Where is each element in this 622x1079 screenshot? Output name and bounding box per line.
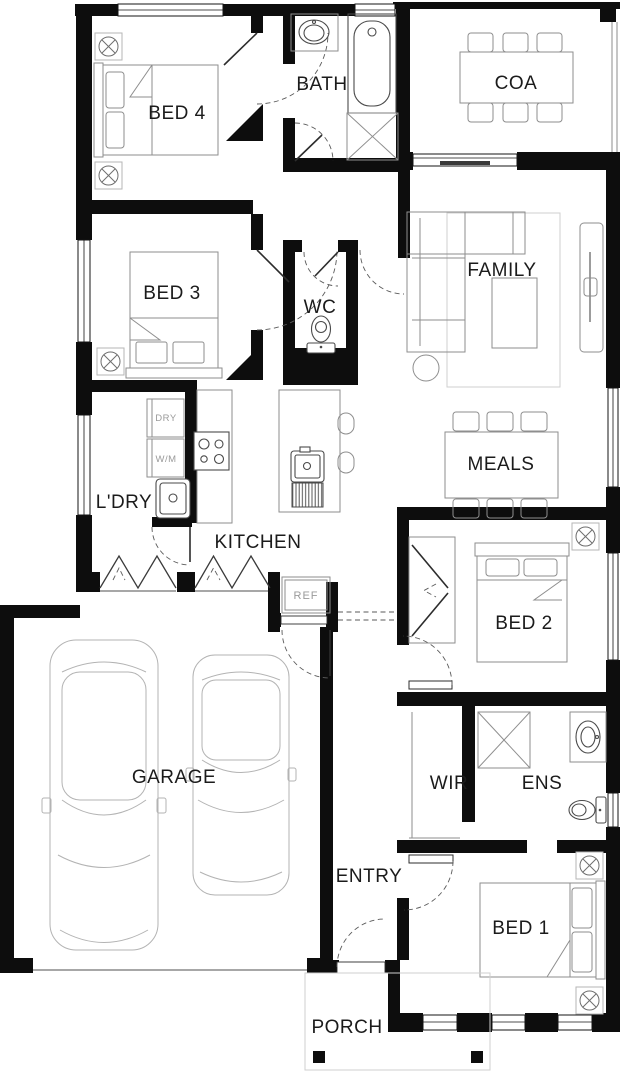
floor-plan-page: BED 4 BATH COA FAMILY BED 3 WC L'DRY KIT… (0, 0, 622, 1079)
coffee-table-icon (492, 278, 537, 348)
downlight-icon (95, 162, 122, 189)
window (423, 1015, 457, 1030)
room-label-wc: WC (304, 297, 337, 318)
bifold-chevron (113, 568, 125, 580)
room-label-bed2: BED 2 (495, 613, 552, 634)
car-icon (42, 640, 166, 950)
sliding-door (413, 154, 517, 166)
door-bath (295, 123, 333, 161)
window (608, 388, 618, 487)
appliance-label-dryer: DRY (155, 413, 177, 424)
room-label-laundry: L'DRY (96, 492, 152, 513)
kitchen-sink-icon (291, 447, 324, 482)
door-front (337, 919, 385, 973)
bifold-doors-icon (195, 556, 270, 588)
toilet-icon (569, 797, 606, 823)
room-label-bath: BATH (296, 74, 347, 95)
shower-icon (347, 113, 398, 160)
room-label-wir: WIR (430, 773, 468, 794)
window (78, 415, 90, 515)
room-label-garage: GARAGE (132, 767, 216, 788)
porch-post (471, 1051, 483, 1063)
bed-icon (475, 543, 569, 662)
dishwasher-icon (292, 483, 323, 507)
appliance-label-fridge: REF (294, 590, 319, 602)
floor-plan: BED 4 BATH COA FAMILY BED 3 WC L'DRY KIT… (0, 0, 622, 1079)
cooktop-icon (194, 432, 229, 470)
door-hall-family (360, 250, 404, 294)
room-label-bed4: BED 4 (148, 103, 205, 124)
room-label-kitchen: KITCHEN (215, 532, 302, 553)
downlight-icon (576, 987, 603, 1014)
bathtub-icon (348, 14, 396, 113)
room-label-bed1: BED 1 (492, 918, 549, 939)
wardrobe-icon (409, 537, 455, 643)
porch-post (313, 1051, 325, 1063)
window (558, 1015, 592, 1030)
room-label-meals: MEALS (468, 454, 535, 475)
bifold-chevron (207, 568, 220, 580)
downlight-icon (572, 523, 599, 550)
room-label-ens: ENS (522, 773, 563, 794)
door-bed1 (404, 855, 453, 910)
window (608, 553, 618, 660)
door-bed2 (403, 636, 452, 689)
basin-icon (291, 14, 338, 51)
window (608, 793, 618, 827)
appliance-label-washer: W/M (155, 454, 176, 465)
room-label-porch: PORCH (311, 1017, 382, 1038)
walls (0, 2, 620, 1032)
downlight-icon (97, 348, 124, 375)
room-label-entry: ENTRY (336, 866, 403, 887)
window (492, 1015, 525, 1030)
window (78, 240, 90, 342)
bifold-doors-icon (100, 556, 176, 588)
basin-icon (570, 712, 606, 762)
sofa-icon (407, 212, 525, 352)
door-wc (304, 252, 338, 286)
door-laundry (152, 527, 190, 565)
room-label-bed3: BED 3 (143, 283, 200, 304)
tv-unit-icon (580, 223, 603, 352)
bed-icon (126, 252, 222, 378)
rug (447, 213, 560, 387)
laundry-trough-icon (156, 479, 190, 518)
downlight-icon (576, 852, 603, 879)
room-label-coa: COA (495, 73, 538, 94)
shower-icon (478, 712, 530, 768)
window (118, 4, 223, 16)
downlight-icon (95, 33, 122, 60)
toilet-icon (307, 316, 335, 353)
room-label-family: FAMILY (467, 260, 536, 281)
side-table-icon (413, 355, 439, 381)
